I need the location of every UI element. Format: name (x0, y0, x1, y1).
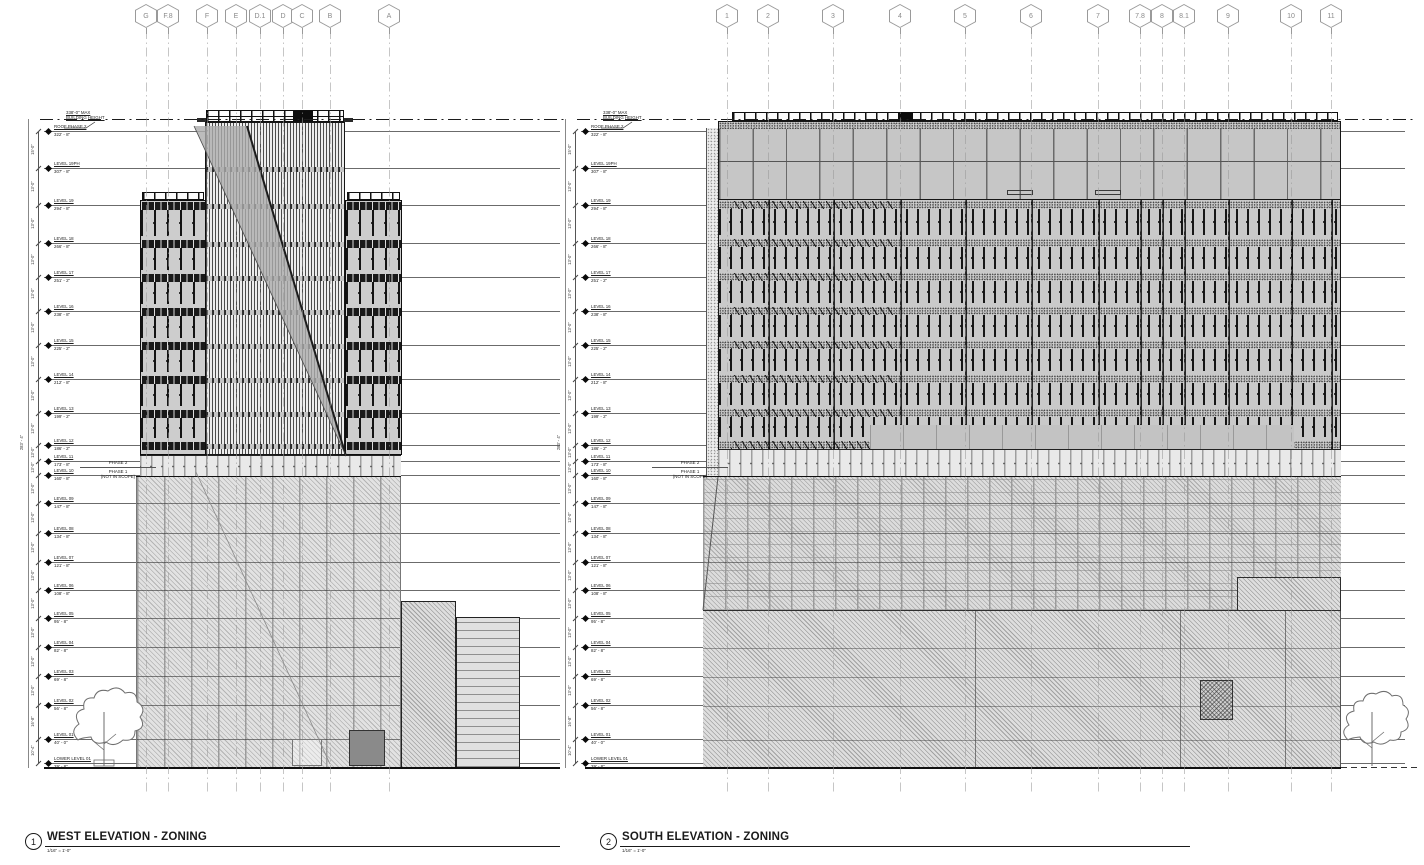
grid-bubble-stem (1162, 28, 1163, 34)
overall-dimension-south: 283' - 4" (556, 435, 561, 450)
grid-bubble-label: F.8 (158, 5, 178, 27)
max-height-label-west: 338'-0" MAX BUILDING HEIGHT (66, 111, 105, 121)
west-view-title: WEST ELEVATION - ZONING (47, 831, 207, 843)
grid-bubble-label: E (226, 5, 246, 27)
grid-bubble: F (196, 4, 218, 28)
grid-bubble-label: 9 (1218, 5, 1238, 27)
grid-bubble-stem (146, 28, 147, 34)
grid-bubble-label: D.1 (250, 5, 270, 27)
grid-bubble-stem (1291, 28, 1292, 34)
grid-bubble: A (378, 4, 400, 28)
grid-line (302, 30, 303, 792)
grid-bubble-stem (260, 28, 261, 34)
south-view-scale: 1/16" = 1'-0" (622, 849, 646, 854)
grid-bubble: 7 (1087, 4, 1109, 28)
grid-bubble-label: 10 (1281, 5, 1301, 27)
grid-bubble-stem (1098, 28, 1099, 34)
grid-line (330, 30, 331, 792)
grid-line (1140, 30, 1141, 792)
grid-bubble-label: 8 (1152, 5, 1172, 27)
grid-bubble: 8.1 (1173, 4, 1195, 28)
grid-bubble: D.1 (249, 4, 271, 28)
grid-bubble-label: A (379, 5, 399, 27)
west-title-underline (45, 846, 560, 847)
max-height-label-south: 338'-0" MAX BUILDING HEIGHT (603, 111, 642, 121)
grid-bubble-stem (727, 28, 728, 34)
grid-bubble-label: 3 (823, 5, 843, 27)
drawing-sheet: ROOF PHASE 2322' - 8"LEVEL 19PH307' - 8"… (0, 0, 1424, 865)
grid-line (389, 30, 390, 792)
not-in-scope-label: (NOT IN SCOPE) (80, 475, 156, 480)
grid-bubble-stem (1228, 28, 1229, 34)
grid-bubble-label: 6 (1021, 5, 1041, 27)
grid-bubble-stem (168, 28, 169, 34)
grid-line (833, 30, 834, 792)
grid-bubble: 10 (1280, 4, 1302, 28)
grid-bubble: 2 (757, 4, 779, 28)
grid-line (1291, 30, 1292, 792)
grid-bubble-label: 4 (890, 5, 910, 27)
grid-bubble-label: 7 (1088, 5, 1108, 27)
grid-bubble: B (319, 4, 341, 28)
grid-bubble-stem (236, 28, 237, 34)
phase2-label: PHASE 2 (80, 461, 156, 466)
grid-line (768, 30, 769, 792)
grid-line (1184, 30, 1185, 792)
grid-line (965, 30, 966, 792)
south-view-number: 2 (600, 833, 617, 850)
grid-bubble-stem (330, 28, 331, 34)
grid-bubble-stem (283, 28, 284, 34)
grid-bubble: 4 (889, 4, 911, 28)
grid-bubble-stem (302, 28, 303, 34)
south-view-title: SOUTH ELEVATION - ZONING (622, 831, 789, 843)
grid-bubble-label: 1 (717, 5, 737, 27)
grid-bubble-stem (389, 28, 390, 34)
grid-line (1331, 30, 1332, 792)
grid-bubble-label: 5 (955, 5, 975, 27)
grid-bubble: 3 (822, 4, 844, 28)
grid-bubble: F.8 (157, 4, 179, 28)
grid-bubble: G (135, 4, 157, 28)
overall-dimension-west: 283' - 4" (19, 435, 24, 450)
phase-note-west: PHASE 2 PHASE 1 (NOT IN SCOPE) (80, 461, 156, 480)
grid-bubble-label: B (320, 5, 340, 27)
grid-bubble-label: C (292, 5, 312, 27)
grid-bubble-stem (1184, 28, 1185, 34)
grid-line (260, 30, 261, 792)
grid-bubble-stem (768, 28, 769, 34)
south-title-underline (620, 846, 1190, 847)
grid-bubble: 8 (1151, 4, 1173, 28)
grid-bubble-label: 2 (758, 5, 778, 27)
grid-bubble-stem (1031, 28, 1032, 34)
grid-line (1162, 30, 1163, 792)
grid-bubble: C (291, 4, 313, 28)
grid-bubble: 5 (954, 4, 976, 28)
grid-bubble: 6 (1020, 4, 1042, 28)
grid-line (207, 30, 208, 792)
west-view-number: 1 (25, 833, 42, 850)
grid-line (1098, 30, 1099, 792)
grid-bubble-stem (833, 28, 834, 34)
grid-bubble: 1 (716, 4, 738, 28)
grid-bubble-stem (207, 28, 208, 34)
grid-bubble-label: 11 (1321, 5, 1341, 27)
grid-line (900, 30, 901, 792)
grid-bubble-stem (965, 28, 966, 34)
grid-bubble-label: 7.8 (1130, 5, 1150, 27)
grid-bubble: 9 (1217, 4, 1239, 28)
grid-bubble-stem (900, 28, 901, 34)
grid-bubble: D (272, 4, 294, 28)
grid-line (168, 30, 169, 792)
grid-bubble: 7.8 (1129, 4, 1151, 28)
phase-note-south: PHASE 2 PHASE 1 (NOT IN SCOPE) (652, 461, 728, 480)
grid-bubble: E (225, 4, 247, 28)
grid-bubble-label: 8.1 (1174, 5, 1194, 27)
grid-bubble: 11 (1320, 4, 1342, 28)
max-height-caption: BUILDING HEIGHT (66, 116, 105, 121)
grid-bubble-label: D (273, 5, 293, 27)
grid-line (727, 30, 728, 792)
grid-line (146, 30, 147, 792)
grid-line (283, 30, 284, 792)
grid-bubble-stem (1140, 28, 1141, 34)
grid-bubble-stem (1331, 28, 1332, 34)
west-view-scale: 1/16" = 1'-0" (47, 849, 71, 854)
grid-line (1031, 30, 1032, 792)
grid-line (1228, 30, 1229, 792)
grid-bubble-label: F (197, 5, 217, 27)
grid-lines-layer: GF.8FED.1DCBA12345677.888.191011 (0, 0, 1424, 865)
grid-line (236, 30, 237, 792)
grid-bubble-label: G (136, 5, 156, 27)
